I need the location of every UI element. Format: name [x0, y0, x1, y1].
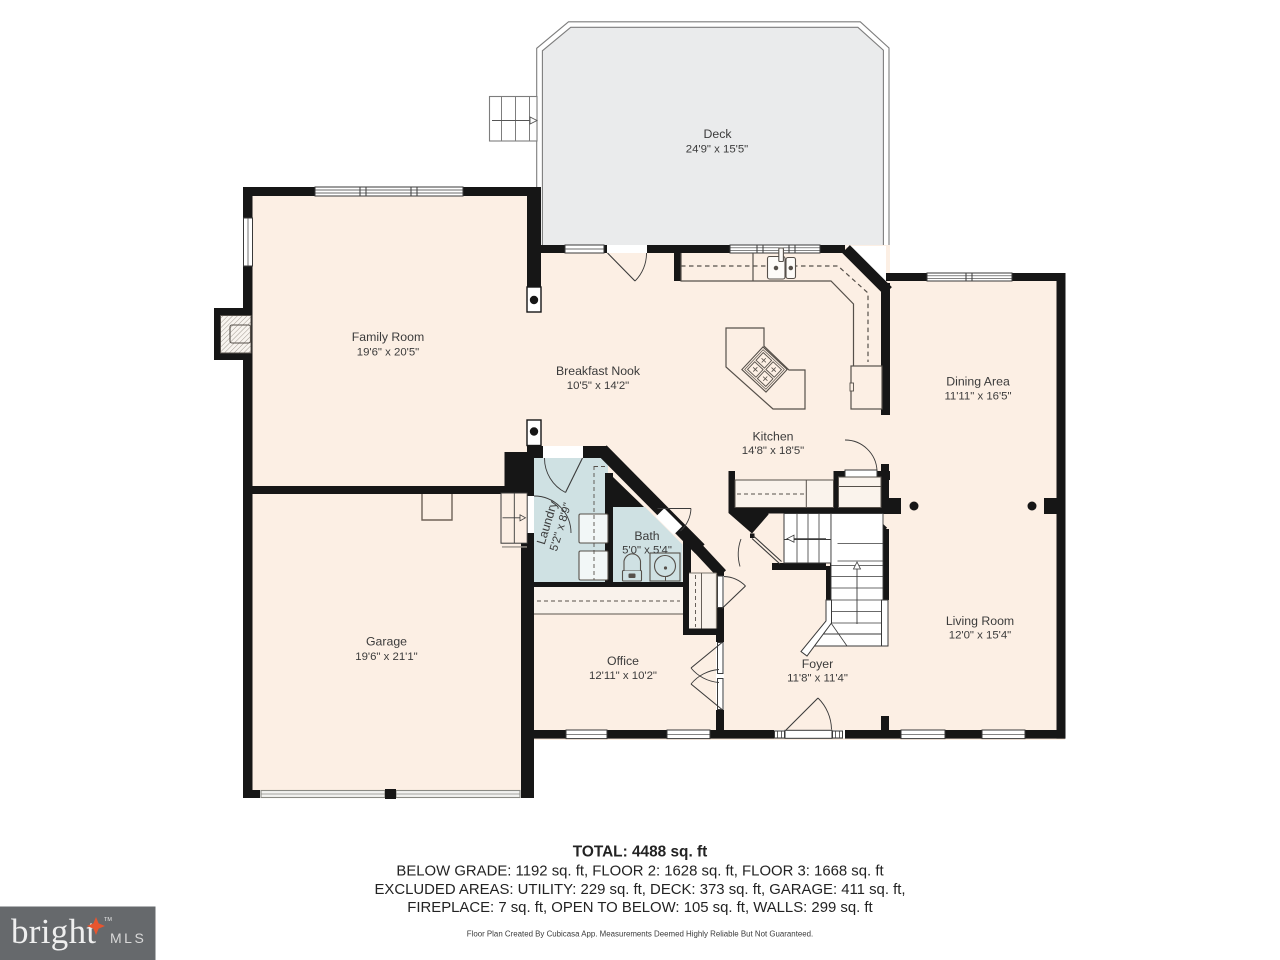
svg-text:MLS: MLS — [110, 930, 146, 946]
svg-text:12'0" x 15'4": 12'0" x 15'4" — [949, 630, 1011, 642]
svg-text:19'6" x 21'1": 19'6" x 21'1" — [355, 651, 417, 663]
svg-text:Breakfast Nook: Breakfast Nook — [556, 364, 641, 378]
svg-text:TOTAL: 4488 sq. ft: TOTAL: 4488 sq. ft — [573, 844, 708, 861]
svg-text:11'11" x 16'5": 11'11" x 16'5" — [944, 391, 1011, 403]
svg-text:Dining Area: Dining Area — [946, 375, 1010, 389]
svg-text:bright: bright — [11, 912, 96, 951]
svg-text:Floor Plan Created By Cubicasa: Floor Plan Created By Cubicasa App. Meas… — [467, 930, 814, 939]
svg-text:14'8" x 18'5": 14'8" x 18'5" — [742, 445, 804, 457]
svg-text:11'8" x 11'4": 11'8" x 11'4" — [787, 673, 848, 685]
svg-text:Family Room: Family Room — [352, 330, 424, 344]
svg-text:19'6" x 20'5": 19'6" x 20'5" — [357, 347, 419, 359]
svg-text:10'5" x 14'2": 10'5" x 14'2" — [567, 380, 629, 392]
svg-text:12'11" x 10'2": 12'11" x 10'2" — [589, 670, 657, 682]
svg-text:Kitchen: Kitchen — [752, 430, 793, 444]
svg-text:Bath: Bath — [634, 529, 659, 543]
svg-text:Living Room: Living Room — [946, 614, 1014, 628]
svg-text:Foyer: Foyer — [802, 657, 833, 671]
svg-text:TM: TM — [104, 917, 112, 923]
svg-text:EXCLUDED AREAS: UTILITY: 229 s: EXCLUDED AREAS: UTILITY: 229 sq. ft, DEC… — [374, 882, 905, 898]
svg-text:BELOW GRADE: 1192 sq. ft, FLOO: BELOW GRADE: 1192 sq. ft, FLOOR 2: 1628 … — [396, 864, 884, 880]
svg-text:Garage: Garage — [366, 635, 407, 649]
svg-text:24'9" x 15'5": 24'9" x 15'5" — [686, 144, 748, 156]
svg-text:FIREPLACE: 7 sq. ft, OPEN TO B: FIREPLACE: 7 sq. ft, OPEN TO BELOW: 105 … — [407, 900, 873, 916]
svg-text:5'0" x 5'4": 5'0" x 5'4" — [622, 544, 672, 556]
svg-text:Office: Office — [607, 654, 639, 668]
svg-text:Deck: Deck — [703, 127, 732, 141]
